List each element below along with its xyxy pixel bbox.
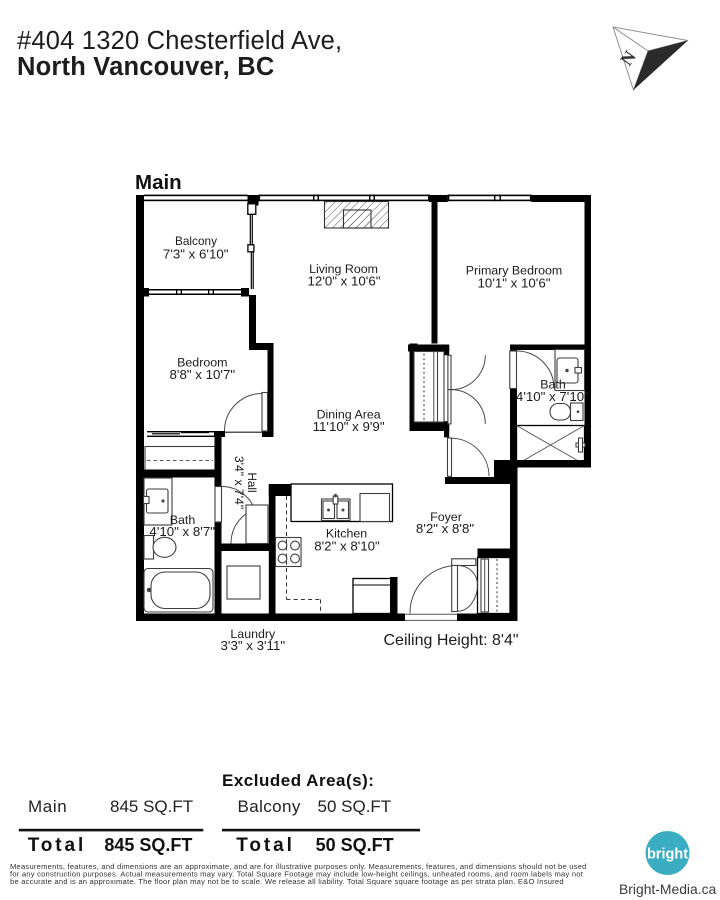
svg-text:bright: bright — [647, 847, 688, 863]
svg-text:North Vancouver, BC: North Vancouver, BC — [17, 53, 274, 81]
svg-text:3'4" x 7'4": 3'4" x 7'4" — [232, 456, 246, 509]
svg-text:Total: Total — [28, 835, 86, 856]
svg-text:#404 1320 Chesterfield Ave,: #404 1320 Chesterfield Ave, — [17, 27, 342, 55]
svg-text:12'0" x 10'6": 12'0" x 10'6" — [308, 274, 381, 289]
svg-text:Hall: Hall — [245, 472, 259, 492]
svg-text:be accurate and is an approxim: be accurate and is an approximate. The f… — [10, 877, 564, 886]
svg-text:3'3" x 3'11": 3'3" x 3'11" — [221, 638, 286, 653]
svg-text:11'10" x 9'9": 11'10" x 9'9" — [313, 419, 385, 434]
svg-text:8'2" x 8'10": 8'2" x 8'10" — [314, 539, 380, 554]
svg-text:8'8" x 10'7": 8'8" x 10'7" — [170, 367, 236, 382]
svg-text:845 SQ.FT: 845 SQ.FT — [110, 797, 193, 816]
svg-text:Total: Total — [236, 835, 294, 856]
svg-text:Bright-Media.ca: Bright-Media.ca — [619, 881, 717, 897]
svg-text:Ceiling Height: 8'4": Ceiling Height: 8'4" — [383, 632, 518, 649]
svg-text:7'3" x 6'10": 7'3" x 6'10" — [163, 247, 229, 262]
svg-text:4'10" x 7'10": 4'10" x 7'10" — [516, 389, 589, 404]
svg-text:4'10" x 8'7": 4'10" x 8'7" — [149, 524, 215, 539]
svg-text:845 SQ.FT: 845 SQ.FT — [104, 835, 192, 855]
svg-text:50 SQ.FT: 50 SQ.FT — [316, 835, 394, 855]
svg-text:Main: Main — [28, 797, 67, 816]
svg-text:10'1" x 10'6": 10'1" x 10'6" — [478, 276, 551, 291]
svg-text:Balcony: Balcony — [238, 797, 301, 816]
svg-text:8'2" x 8'8": 8'2" x 8'8" — [416, 521, 474, 536]
svg-text:50 SQ.FT: 50 SQ.FT — [318, 797, 392, 816]
svg-text:Excluded Area(s):: Excluded Area(s): — [222, 771, 374, 790]
svg-text:Main: Main — [135, 171, 182, 194]
